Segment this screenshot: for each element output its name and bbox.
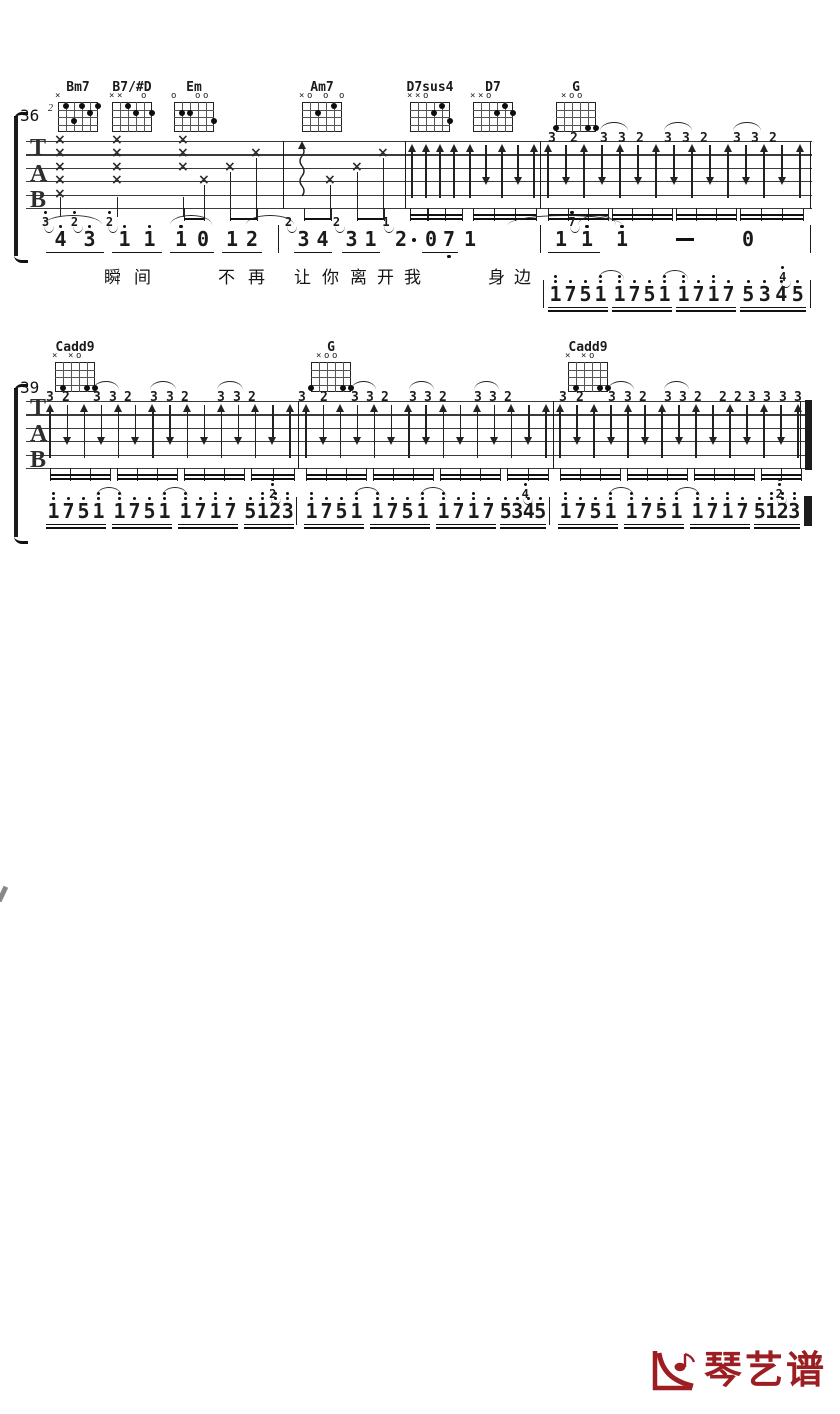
jianpu-note: 1 — [348, 500, 366, 522]
chord-grid-fret — [568, 377, 608, 378]
octave-dot-above — [52, 492, 55, 495]
strum-arrow-up-head — [404, 404, 412, 412]
octave-dot-above — [261, 492, 264, 495]
strum-arrow-down-head — [166, 437, 174, 445]
strum-arrow-up-head — [760, 144, 768, 152]
strum-arrow-up-icon — [533, 151, 534, 198]
strum-count-number: 3 — [559, 391, 567, 404]
beam — [761, 474, 801, 476]
strum-arrow-up-icon — [547, 151, 548, 198]
strum-arrow-down-head — [97, 437, 105, 445]
beam — [694, 474, 754, 476]
jianpu-note: 0 — [739, 228, 757, 250]
strum-arrow-down-icon — [67, 405, 68, 439]
underline — [46, 527, 106, 529]
strum-arrow-up-head — [507, 404, 515, 412]
staff-line — [26, 455, 806, 456]
strum-arrow-up-icon — [583, 151, 584, 198]
strum-arrow-up-icon — [289, 411, 290, 458]
beam-stem — [110, 468, 111, 481]
strum-count-number: 3 — [298, 391, 306, 404]
underline — [548, 252, 600, 254]
underline — [112, 527, 172, 529]
underline — [740, 310, 806, 312]
jianpu-note: 2 — [392, 228, 410, 250]
chord-grid-fret — [174, 125, 214, 126]
beam — [306, 474, 366, 476]
chord-grid-fret — [112, 125, 152, 126]
open-string-mark: o — [141, 92, 146, 101]
strum-count-number: 2 — [124, 391, 132, 404]
strum-count-number: 3 — [751, 132, 759, 145]
strum-arrow-up-icon — [501, 151, 502, 198]
beam — [50, 478, 110, 480]
staff-line — [26, 141, 812, 142]
octave-dot-above — [712, 275, 715, 278]
strum-arrow-up-icon — [619, 151, 620, 198]
strum-arrow-up-icon — [84, 411, 85, 458]
octave-dot-above — [570, 211, 573, 214]
jianpu-note: 4 — [314, 228, 332, 250]
muted-string-mark: × — [299, 92, 304, 101]
octave-dot-above — [620, 225, 623, 228]
jianpu-note: 7 — [440, 228, 458, 250]
fret-dot — [95, 103, 101, 109]
open-string-mark: o — [423, 92, 428, 101]
underline — [170, 252, 214, 254]
jianpu-note: 3 — [756, 283, 774, 305]
barline — [298, 401, 299, 469]
scan-edge-mark — [0, 886, 8, 903]
mute-x-mark: × — [111, 173, 123, 187]
strum-arrow-up-head — [302, 404, 310, 412]
beam — [676, 218, 736, 220]
chord-grid-fret — [410, 125, 450, 126]
octave-dot-above — [564, 492, 567, 495]
strum-arrow-down-head — [670, 177, 678, 185]
octave-dot-above — [726, 492, 729, 495]
chord-grid-fret — [302, 125, 342, 126]
strum-arrow-up-icon — [453, 151, 454, 198]
jianpu-barline — [540, 225, 541, 253]
beam-stem — [433, 468, 434, 481]
strum-count-number: 3 — [351, 391, 359, 404]
staff-line — [26, 428, 806, 429]
logo-text: 琴艺谱 — [704, 1351, 827, 1389]
muted-string-mark: × — [109, 92, 114, 101]
chord-name: D7 — [453, 80, 533, 95]
slur-arc — [93, 381, 119, 390]
barline — [553, 401, 554, 469]
underline — [558, 524, 618, 526]
beam — [117, 474, 177, 476]
strum-arrow-up-head — [466, 144, 474, 152]
arpeggio-squiggle-icon — [296, 139, 308, 203]
strum-arrow-down-icon — [204, 405, 205, 439]
octave-dot-above — [781, 266, 784, 269]
beam — [184, 474, 244, 476]
beam — [627, 478, 687, 480]
jianpu-dash-note — [676, 238, 694, 241]
strum-arrow-up-icon — [799, 151, 800, 198]
beam — [473, 214, 536, 216]
beam — [373, 474, 433, 476]
strum-arrow-down-icon — [780, 405, 781, 439]
underline — [46, 252, 104, 254]
slur-arc — [150, 381, 176, 390]
jianpu-note: 3 — [279, 500, 297, 522]
strum-arrow-up-head — [624, 404, 632, 412]
strum-count-number: 3 — [748, 391, 756, 404]
jianpu-note: 1 — [172, 228, 190, 250]
strum-count-number: 3 — [409, 391, 417, 404]
tab-letter: A — [30, 422, 47, 446]
strum-arrow-down-icon — [169, 405, 170, 439]
strum-count-number: 2 — [636, 132, 644, 145]
strum-arrow-down-head — [709, 437, 717, 445]
chord-grid-fret — [302, 110, 342, 111]
strum-arrow-up-head — [760, 404, 768, 412]
strum-count-number: 2 — [381, 391, 389, 404]
octave-dot-above — [249, 497, 252, 500]
lyric-char: 瞬 — [104, 263, 121, 288]
chord-grid-fret — [311, 370, 351, 371]
staff-line — [26, 195, 812, 196]
mute-x-mark: × — [177, 160, 189, 174]
beam — [507, 474, 548, 476]
strum-count-number: 3 — [600, 132, 608, 145]
strum-count-number: 3 — [608, 391, 616, 404]
jianpu-note: 0 — [194, 228, 212, 250]
chord-name: G — [291, 340, 371, 355]
lyric-char: 不 — [218, 263, 235, 288]
jianpu-note: 1 — [602, 500, 620, 522]
strum-arrow-down-head — [268, 437, 276, 445]
strum-arrow-up-head — [542, 404, 550, 412]
sheet-music-page: 琴艺谱 36TABBm72×B7/#D××oEmoooAm7×oooD7sus4… — [0, 0, 840, 1414]
strum-count-number: 2 — [639, 391, 647, 404]
open-string-mark: o — [76, 352, 81, 361]
chord-grid-fret — [58, 125, 98, 126]
strum-arrow-up-icon — [593, 411, 594, 458]
strum-arrow-up-head — [336, 404, 344, 412]
underline — [436, 524, 496, 526]
jianpu-note: 1 — [613, 228, 631, 250]
strum-count-number: 3 — [489, 391, 497, 404]
strum-arrow-up-icon — [477, 411, 478, 458]
beam-stem — [736, 208, 737, 221]
slur-arc — [217, 381, 243, 390]
strum-arrow-up-head — [148, 404, 156, 412]
beam-stem — [801, 468, 802, 481]
strum-arrow-up-head — [658, 404, 666, 412]
underline — [178, 527, 238, 529]
jianpu-note: 1 — [656, 283, 674, 305]
staff-line — [26, 441, 806, 442]
muted-string-mark: × — [565, 352, 570, 361]
strum-arrow-down-head — [742, 177, 750, 185]
tab-letter: B — [30, 448, 46, 472]
beam — [560, 474, 620, 476]
jianpu-note: 1 — [116, 228, 134, 250]
strum-arrow-up-icon — [340, 411, 341, 458]
strum-count-number: 3 — [624, 391, 632, 404]
strum-arrow-down-icon — [746, 405, 747, 439]
beam — [410, 218, 462, 220]
jianpu-note: 7 — [222, 500, 240, 522]
note-stem — [60, 197, 61, 217]
logo-music-note-icon — [648, 1346, 698, 1394]
jianpu-note: 1 — [414, 500, 432, 522]
strum-count-number: 3 — [166, 391, 174, 404]
chord-name: Em — [154, 80, 234, 95]
underline — [304, 527, 364, 529]
strum-arrow-down-icon — [101, 405, 102, 439]
jianpu-note: 7 — [480, 500, 498, 522]
strum-arrow-down-icon — [391, 405, 392, 439]
chord-grid-fret — [311, 377, 351, 378]
underline — [676, 310, 736, 312]
jianpu-note: 1 — [668, 500, 686, 522]
strum-arrow-down-icon — [601, 145, 602, 179]
beam-stem — [672, 208, 673, 221]
jianpu-note: 0 — [422, 228, 440, 250]
chord-name: Am7 — [282, 80, 362, 95]
slur-arc — [608, 381, 634, 390]
barline — [540, 141, 541, 209]
strum-arrow-down-head — [634, 177, 642, 185]
staff-line — [26, 154, 812, 155]
beam-stem — [620, 468, 621, 481]
jianpu-note: 1 — [362, 228, 380, 250]
strum-arrow-down-icon — [745, 145, 746, 179]
beam-stem — [177, 468, 178, 481]
fret-dot — [331, 103, 337, 109]
strum-arrow-down-icon — [637, 145, 638, 179]
muted-string-mark: × — [478, 92, 483, 101]
strum-arrow-up-icon — [305, 411, 306, 458]
strum-count-number: 3 — [474, 391, 482, 404]
lyric-char: 你 — [322, 263, 339, 288]
strum-arrow-up-icon — [559, 411, 560, 458]
tab-letter: A — [30, 162, 47, 186]
strum-count-number: 3 — [424, 391, 432, 404]
beam — [560, 478, 620, 480]
strum-arrow-down-icon — [576, 405, 577, 439]
jianpu-note: 7 — [734, 500, 752, 522]
octave-dot-above — [793, 492, 796, 495]
strum-arrow-down-icon — [673, 145, 674, 179]
strum-arrow-down-head — [598, 177, 606, 185]
strum-arrow-down-head — [319, 437, 327, 445]
augmentation-dot — [412, 238, 416, 242]
strum-count-number: 2 — [734, 391, 742, 404]
strum-arrow-down-head — [777, 437, 785, 445]
slur-arc — [170, 215, 212, 225]
strum-arrow-up-icon — [187, 411, 188, 458]
jianpu-note: 1 — [156, 500, 174, 522]
strum-count-number: 2 — [719, 391, 727, 404]
strum-count-number: 2 — [576, 391, 584, 404]
fret-dot — [447, 118, 453, 124]
lyric-char: 离 — [350, 263, 367, 288]
beam — [373, 478, 433, 480]
jianpu-barline — [810, 225, 811, 253]
octave-dot-above — [539, 497, 542, 500]
open-string-mark: o — [307, 92, 312, 101]
strum-arrow-up-icon — [374, 411, 375, 458]
beam-stem — [244, 468, 245, 481]
strum-arrow-up-head — [408, 144, 416, 152]
muted-string-mark: × — [470, 92, 475, 101]
strum-arrow-down-icon — [517, 145, 518, 179]
chord-grid-fret — [473, 110, 513, 111]
jianpu-note: 5 — [789, 283, 807, 305]
strum-arrow-down-head — [387, 437, 395, 445]
strum-arrow-up-icon — [411, 151, 412, 198]
lyric-char: 再 — [248, 263, 265, 288]
strum-arrow-down-head — [524, 437, 532, 445]
chord-grid-fret — [302, 117, 342, 118]
fret-dot — [125, 103, 131, 109]
strum-arrow-up-head — [590, 404, 598, 412]
strum-arrow-down-icon — [678, 405, 679, 439]
underline — [436, 527, 496, 529]
strum-arrow-up-head — [688, 144, 696, 152]
barline — [405, 141, 406, 209]
strum-arrow-down-head — [778, 177, 786, 185]
underline — [612, 310, 672, 312]
slur-arc — [733, 122, 761, 131]
strum-arrow-up-head — [556, 404, 564, 412]
strum-arrow-down-head — [514, 177, 522, 185]
beam-stem — [500, 468, 501, 481]
muted-string-mark: × — [561, 92, 566, 101]
strum-count-number: 3 — [679, 391, 687, 404]
strum-arrow-up-icon — [627, 411, 628, 458]
strum-arrow-up-icon — [545, 411, 546, 458]
beam — [440, 474, 500, 476]
strum-arrow-up-head — [114, 404, 122, 412]
watermark-logo: 琴艺谱 — [648, 1346, 827, 1394]
muted-string-mark: × — [55, 92, 60, 101]
strum-arrow-up-head — [473, 404, 481, 412]
strum-arrow-up-head — [450, 144, 458, 152]
octave-dot-above — [747, 280, 750, 283]
strum-arrow-down-head — [675, 437, 683, 445]
jianpu-note: 3 — [785, 500, 803, 522]
strum-arrow-up-icon — [729, 411, 730, 458]
jianpu-note: 1 — [592, 283, 610, 305]
chord-grid-fret — [55, 377, 95, 378]
system-bracket-hook-bottom — [14, 535, 28, 544]
chord-grid-fret — [112, 110, 152, 111]
strum-count-number: 2 — [504, 391, 512, 404]
octave-dot-above — [108, 211, 111, 214]
strum-arrow-down-head — [482, 177, 490, 185]
underline — [370, 524, 430, 526]
strum-arrow-up-icon — [443, 411, 444, 458]
lyric-char: 身 — [488, 263, 505, 288]
note-stem — [117, 197, 118, 217]
lyric-char: 边 — [514, 263, 531, 288]
underline — [370, 527, 430, 529]
strum-arrow-down-head — [706, 177, 714, 185]
fret-dot — [71, 118, 77, 124]
strum-arrow-up-icon — [763, 151, 764, 198]
fret-dot — [510, 110, 516, 116]
underline — [222, 252, 262, 254]
beam — [627, 474, 687, 476]
strum-count-number: 3 — [664, 391, 672, 404]
strum-arrow-up-head — [692, 404, 700, 412]
beam — [761, 478, 801, 480]
strum-arrow-down-icon — [323, 405, 324, 439]
beam-stem — [462, 208, 463, 221]
jianpu-note: 1 — [461, 228, 479, 250]
muted-string-mark: × — [68, 352, 73, 361]
octave-dot-below — [447, 255, 450, 258]
underline — [46, 524, 106, 526]
strum-arrow-up-head — [580, 144, 588, 152]
strum-arrow-down-icon — [712, 405, 713, 439]
strum-count-number: 2 — [769, 132, 777, 145]
open-string-mark: o — [323, 92, 328, 101]
underline — [178, 524, 238, 526]
chord-grid-fret — [55, 370, 95, 371]
strum-arrow-up-icon — [655, 151, 656, 198]
strum-arrow-down-head — [131, 437, 139, 445]
octave-dot-above — [271, 478, 274, 481]
fret-dot — [63, 103, 69, 109]
strum-arrow-down-icon — [494, 405, 495, 439]
strum-arrow-up-head — [530, 144, 538, 152]
chord-grid-fret — [58, 117, 98, 118]
staff-line — [26, 208, 812, 209]
staff-line — [26, 168, 812, 169]
barline — [283, 141, 284, 209]
strum-arrow-up-head — [498, 144, 506, 152]
jianpu-note: 7 — [720, 283, 738, 305]
fret-dot — [593, 125, 599, 131]
beam — [694, 478, 754, 480]
underline — [690, 524, 750, 526]
lyric-char: 间 — [134, 263, 151, 288]
beam — [50, 474, 110, 476]
underline — [304, 524, 364, 526]
beam — [440, 478, 500, 480]
chord-grid-fret — [473, 125, 513, 126]
strum-count-number: 3 — [93, 391, 101, 404]
beam-stem — [548, 468, 549, 481]
chord-grid-fret — [410, 117, 450, 118]
underline — [500, 524, 546, 526]
staff-line — [26, 414, 806, 415]
system-bracket — [14, 116, 18, 256]
strum-arrow-down-head — [743, 437, 751, 445]
strum-arrow-up-head — [724, 144, 732, 152]
underline — [624, 527, 684, 529]
strum-arrow-down-icon — [238, 405, 239, 439]
open-string-mark: o — [577, 92, 582, 101]
strum-arrow-down-icon — [644, 405, 645, 439]
strum-arrow-up-icon — [255, 411, 256, 458]
jianpu-note: 5 — [739, 283, 757, 305]
open-string-mark: o — [569, 92, 574, 101]
underline — [676, 307, 736, 309]
strum-count-number: 3 — [779, 391, 787, 404]
slur-arc — [664, 122, 692, 131]
